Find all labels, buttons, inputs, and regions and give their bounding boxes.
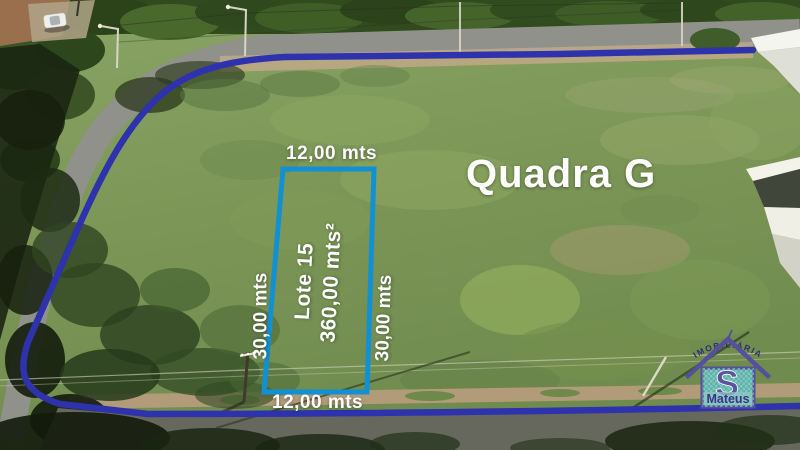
- lot-depth-label-right: 30,00 mts: [373, 274, 395, 361]
- lot-label-group: Lote 15 360,00 mts²: [288, 221, 349, 344]
- aerial-photo: IMOBILIÁRIA S Mateus 12,00 mts Quadra G …: [0, 0, 800, 450]
- aerial-scene: IMOBILIÁRIA S Mateus: [0, 0, 800, 450]
- lot-width-label-top: 12,00 mts: [286, 144, 377, 163]
- lot-depth-label-left: 30,00 mts: [252, 273, 271, 360]
- block-label: Quadra G: [466, 154, 656, 194]
- logo-name: Mateus: [706, 392, 749, 406]
- lot-width-label-bottom: 12,00 mts: [272, 393, 363, 412]
